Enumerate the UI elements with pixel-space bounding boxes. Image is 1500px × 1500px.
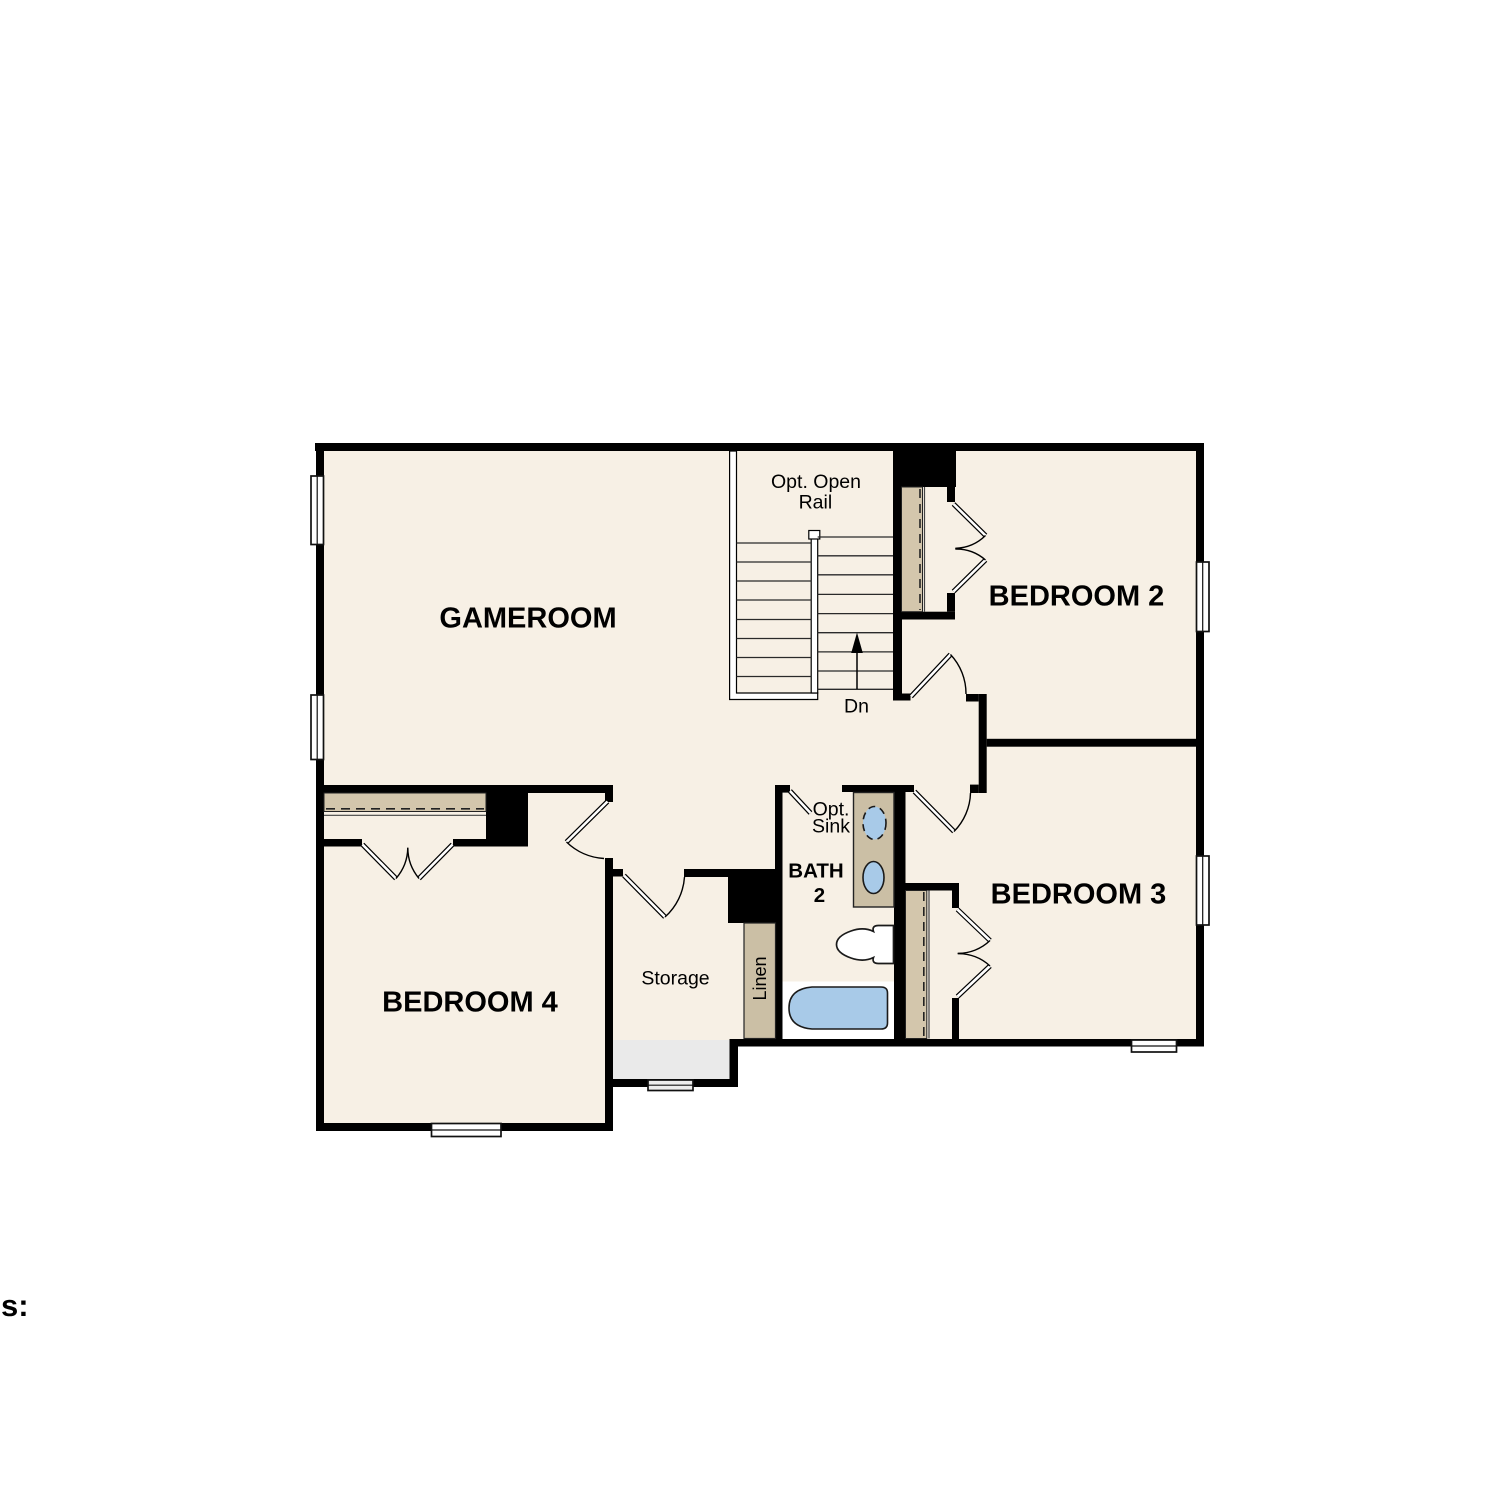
svg-text:BEDROOM 3: BEDROOM 3 — [991, 879, 1167, 911]
svg-text:Opt. Open: Opt. Open — [771, 471, 861, 493]
svg-text:GAMEROOM: GAMEROOM — [439, 603, 616, 635]
svg-text:s:: s: — [1, 1288, 29, 1323]
svg-text:BATH: BATH — [788, 860, 843, 883]
svg-text:2: 2 — [814, 884, 825, 907]
svg-text:Rail: Rail — [799, 492, 833, 514]
svg-text:Dn: Dn — [844, 696, 869, 718]
svg-text:Storage: Storage — [641, 968, 709, 990]
svg-text:Linen: Linen — [750, 956, 770, 1000]
svg-text:Sink: Sink — [812, 816, 850, 838]
svg-text:BEDROOM 2: BEDROOM 2 — [989, 581, 1165, 613]
svg-text:BEDROOM 4: BEDROOM 4 — [382, 987, 558, 1019]
